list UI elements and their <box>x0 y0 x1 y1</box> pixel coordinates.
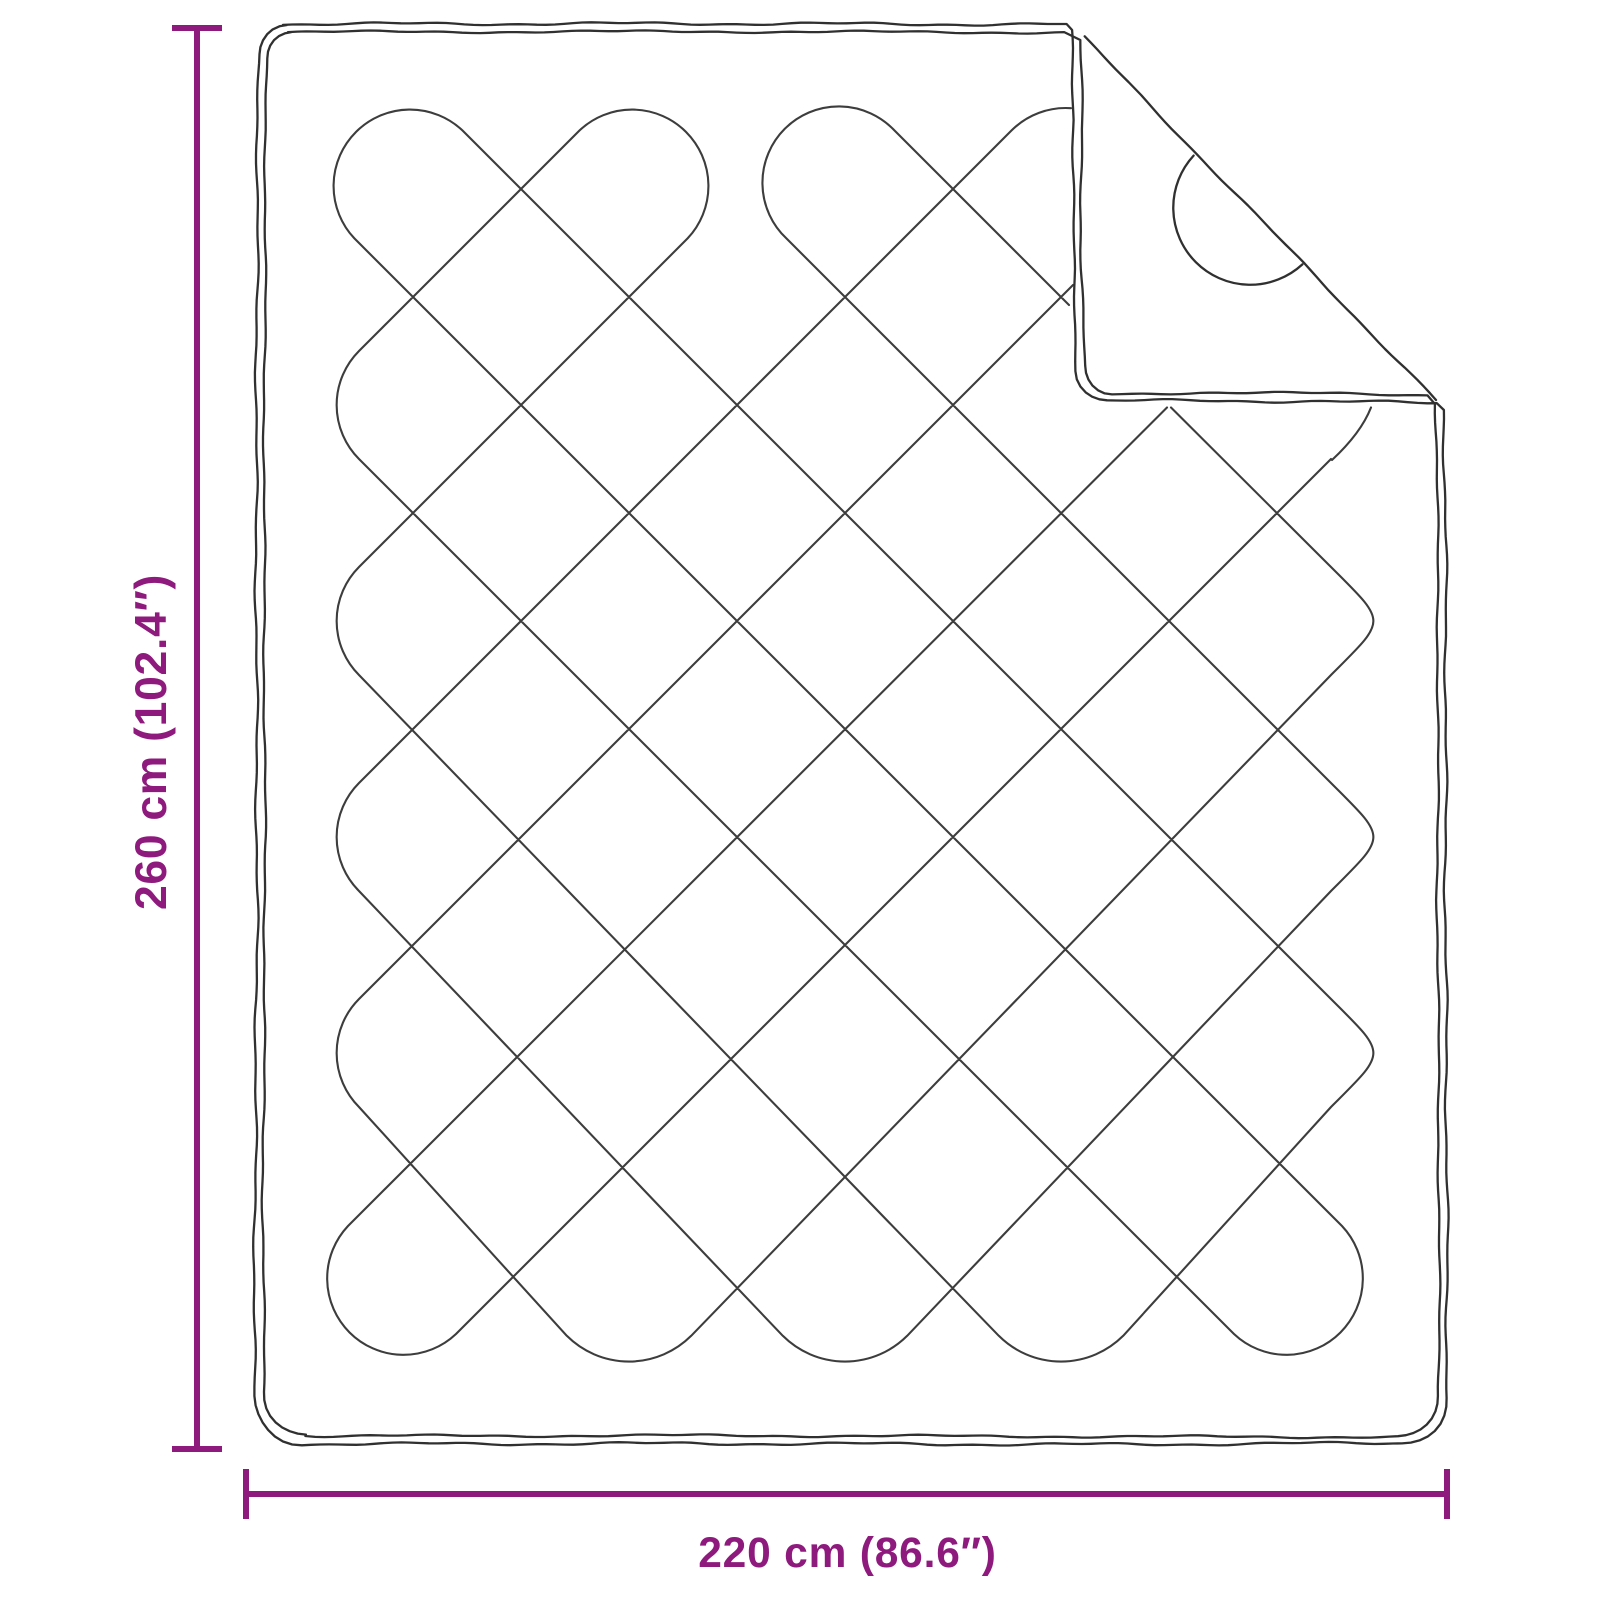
svg-text:260 cm (102.4″): 260 cm (102.4″) <box>127 574 176 910</box>
svg-text:220 cm (86.6″): 220 cm (86.6″) <box>698 1530 997 1577</box>
